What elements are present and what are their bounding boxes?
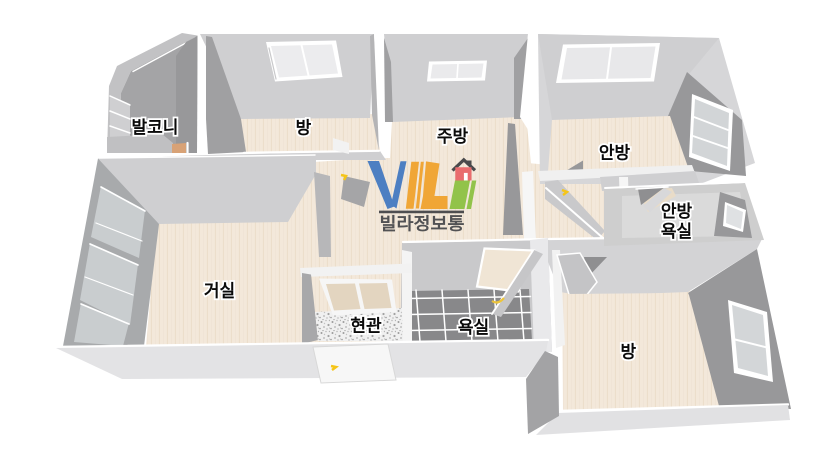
svg-text:발코니: 발코니 xyxy=(132,118,179,137)
svg-text:현관: 현관 xyxy=(350,317,382,336)
svg-text:주방: 주방 xyxy=(437,127,469,146)
svg-text:욕실: 욕실 xyxy=(458,318,489,337)
svg-text:안방: 안방 xyxy=(599,144,631,163)
svg-text:욕실: 욕실 xyxy=(661,222,692,241)
svg-text:안방: 안방 xyxy=(661,202,693,221)
svg-text:거실: 거실 xyxy=(204,282,235,301)
svg-text:방: 방 xyxy=(296,119,312,138)
svg-text:빌라정보통: 빌라정보통 xyxy=(380,215,465,234)
svg-text:방: 방 xyxy=(620,343,636,362)
